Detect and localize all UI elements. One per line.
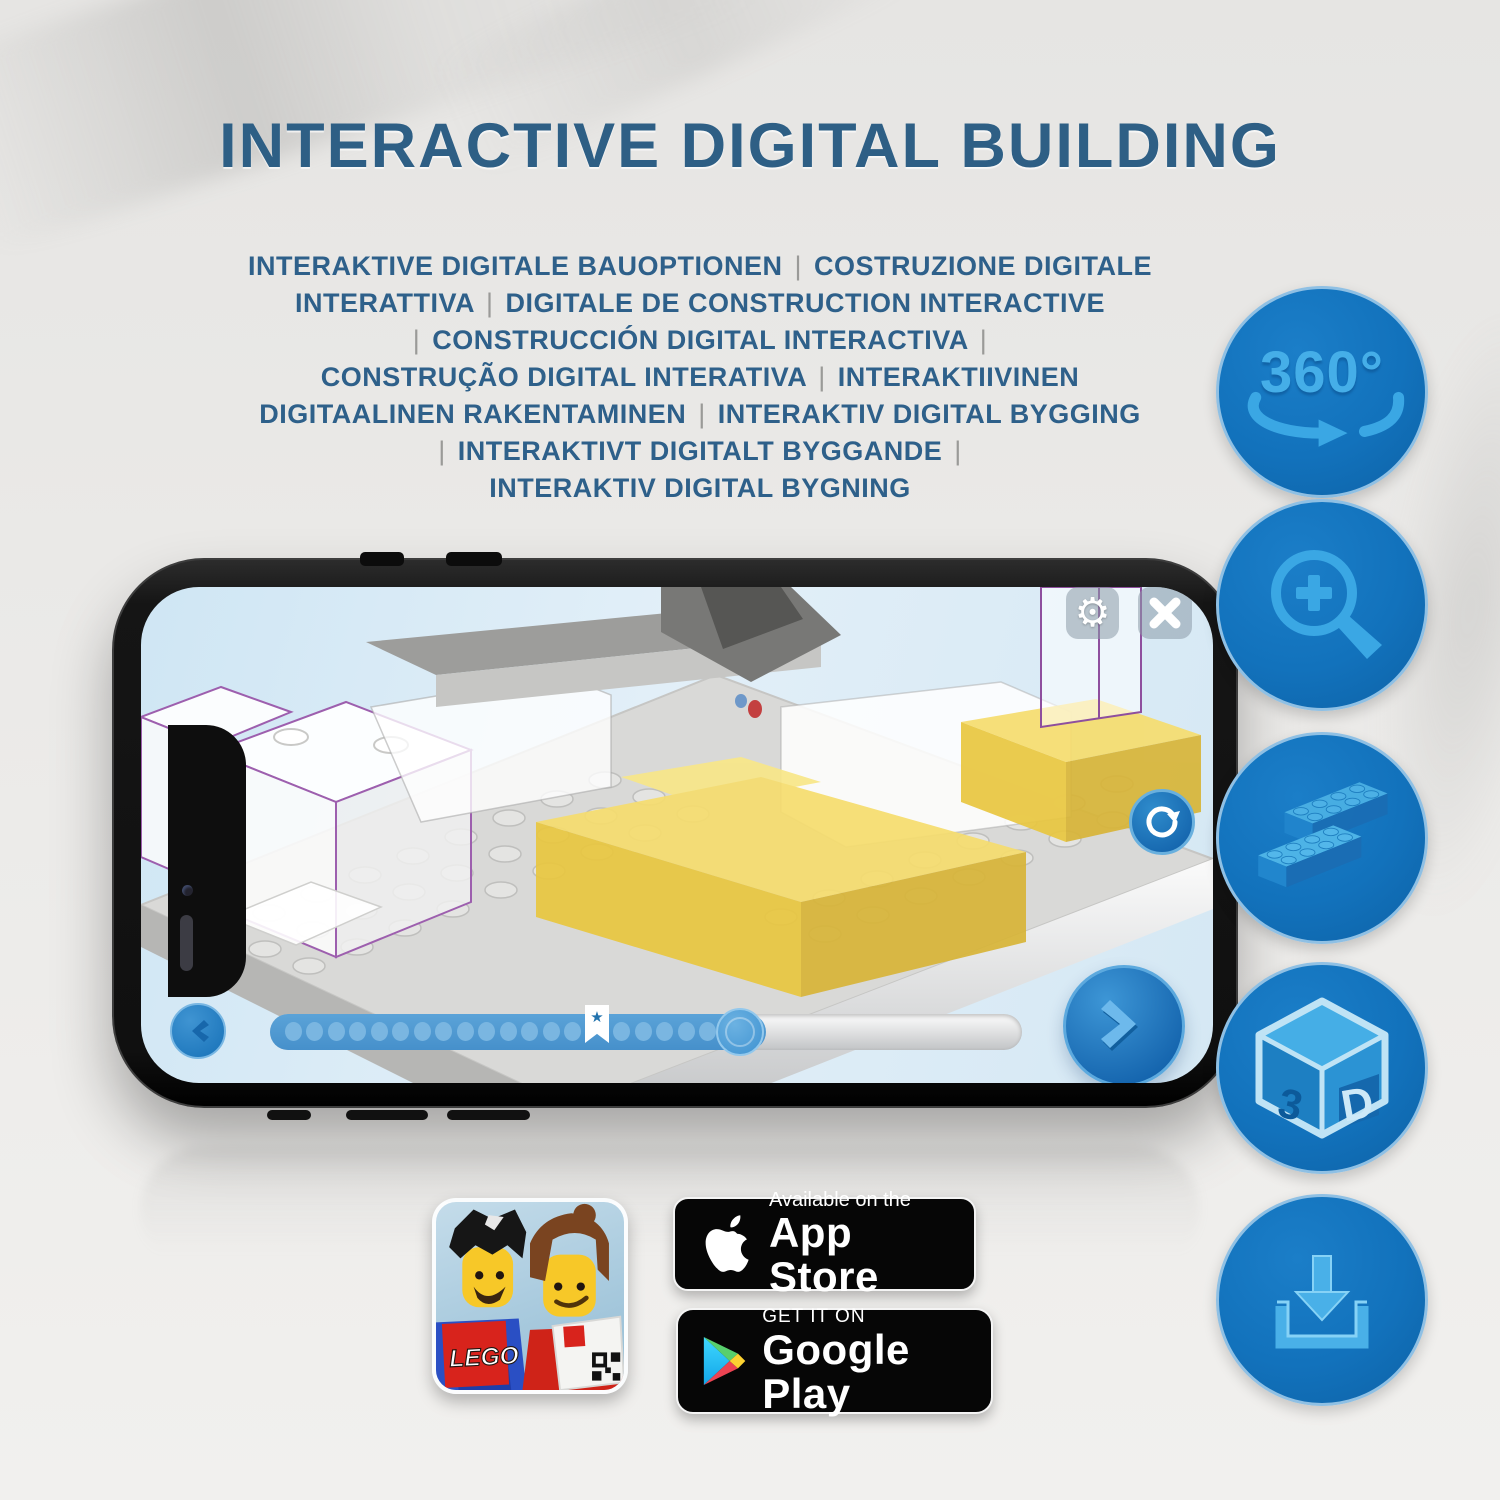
phone-side-button — [360, 552, 404, 566]
feature-zoom — [1216, 499, 1428, 711]
subtitle-line: | INTERAKTIVT DIGITALT BYGGANDE | — [0, 433, 1400, 470]
svg-text:LEGO: LEGO — [449, 1342, 520, 1373]
zoom-in-icon — [1252, 535, 1392, 675]
close-button[interactable] — [1138, 587, 1192, 639]
google-play-icon — [702, 1333, 746, 1389]
progress-dot — [478, 1022, 495, 1041]
progress-dot — [457, 1022, 474, 1041]
app-store-badge[interactable]: Available on the App Store — [673, 1197, 976, 1291]
progress-dot — [285, 1022, 302, 1041]
progress-dot — [306, 1022, 323, 1041]
next-step-button[interactable] — [1063, 965, 1185, 1083]
download-icon — [1252, 1230, 1392, 1370]
multilingual-subtitle: INTERAKTIVE DIGITALE BAUOPTIONEN | COSTR… — [0, 248, 1400, 507]
lego-bricks-icon — [1247, 773, 1397, 903]
page-title: INTERACTIVE DIGITAL BUILDING — [0, 110, 1500, 182]
subtitle-line: INTERAKTIVE DIGITALE BAUOPTIONEN | COSTR… — [0, 248, 1400, 285]
bookmark-marker[interactable]: ★ — [585, 1005, 609, 1043]
progress-dot — [349, 1022, 366, 1041]
previous-step-button[interactable] — [170, 1003, 226, 1059]
star-icon: ★ — [590, 1008, 603, 1043]
chevron-left-icon — [185, 1017, 211, 1045]
progress-dot — [392, 1022, 409, 1041]
camera-icon — [182, 885, 193, 896]
subtitle-line: INTERAKTIV DIGITAL BYGNING — [0, 470, 1400, 507]
feature-360-rotation: 360° — [1216, 286, 1428, 498]
subtitle-line: CONSTRUÇÃO DIGITAL INTERATIVA | INTERAKT… — [0, 359, 1400, 396]
lego-app-icon[interactable]: LEGO — [432, 1198, 628, 1394]
phone-side-button — [267, 1110, 311, 1120]
phone-reflection — [140, 1146, 1200, 1276]
phone-notch — [168, 725, 246, 997]
progress-dot — [656, 1022, 673, 1041]
chevron-right-icon — [1096, 995, 1152, 1057]
rotate-view-button[interactable] — [1129, 789, 1195, 855]
app-screen: ⚙ — [141, 587, 1213, 1083]
gear-icon: ⚙ — [1075, 593, 1111, 633]
progress-dot — [699, 1022, 716, 1041]
google-play-tagline: GET IT ON — [762, 1306, 991, 1328]
progress-dot — [500, 1022, 517, 1041]
feature-bricks — [1216, 732, 1428, 944]
rotate-icon — [1142, 802, 1182, 842]
subtitle-line: DIGITAALINEN RAKENTAMINEN | INTERAKTIV D… — [0, 396, 1400, 433]
close-icon — [1148, 596, 1182, 630]
progress-slider[interactable]: ★ — [270, 1014, 1022, 1050]
progress-dot — [521, 1022, 538, 1041]
phone-side-button — [346, 1110, 428, 1120]
subtitle-line: | CONSTRUCCIÓN DIGITAL INTERACTIVA | — [0, 322, 1400, 359]
slider-handle[interactable] — [716, 1008, 764, 1056]
apple-icon — [701, 1214, 753, 1274]
settings-button[interactable]: ⚙ — [1066, 587, 1119, 639]
google-play-badge[interactable]: GET IT ON Google Play — [676, 1308, 993, 1414]
poster-canvas: INTERACTIVE DIGITAL BUILDING INTERAKTIVE… — [0, 0, 1500, 1500]
subtitle-line: INTERATTIVA | DIGITALE DE CONSTRUCTION I… — [0, 285, 1400, 322]
progress-dot — [635, 1022, 652, 1041]
progress-dot — [371, 1022, 388, 1041]
feature-download — [1216, 1194, 1428, 1406]
phone-mockup: ⚙ — [112, 558, 1238, 1108]
phone-side-button — [446, 552, 502, 566]
lego-3d-scene — [141, 587, 1213, 1083]
progress-dot — [678, 1022, 695, 1041]
progress-dot — [414, 1022, 431, 1041]
3d-cube-icon: 3 D — [1247, 993, 1397, 1143]
app-store-label: App Store — [769, 1211, 974, 1299]
progress-dot — [543, 1022, 560, 1041]
progress-fill: ★ — [270, 1014, 766, 1050]
speaker-slot — [180, 915, 193, 971]
progress-dot — [613, 1022, 630, 1041]
phone-side-button — [447, 1110, 530, 1120]
progress-dot — [435, 1022, 452, 1041]
progress-dot — [564, 1022, 581, 1041]
rotation-arrow-icon — [1237, 386, 1407, 448]
feature-3d-view: 3 D — [1216, 962, 1428, 1174]
progress-dot — [328, 1022, 345, 1041]
lego-app-icon-art: LEGO — [436, 1202, 624, 1390]
app-store-tagline: Available on the — [769, 1189, 974, 1211]
google-play-label: Google Play — [762, 1328, 991, 1416]
